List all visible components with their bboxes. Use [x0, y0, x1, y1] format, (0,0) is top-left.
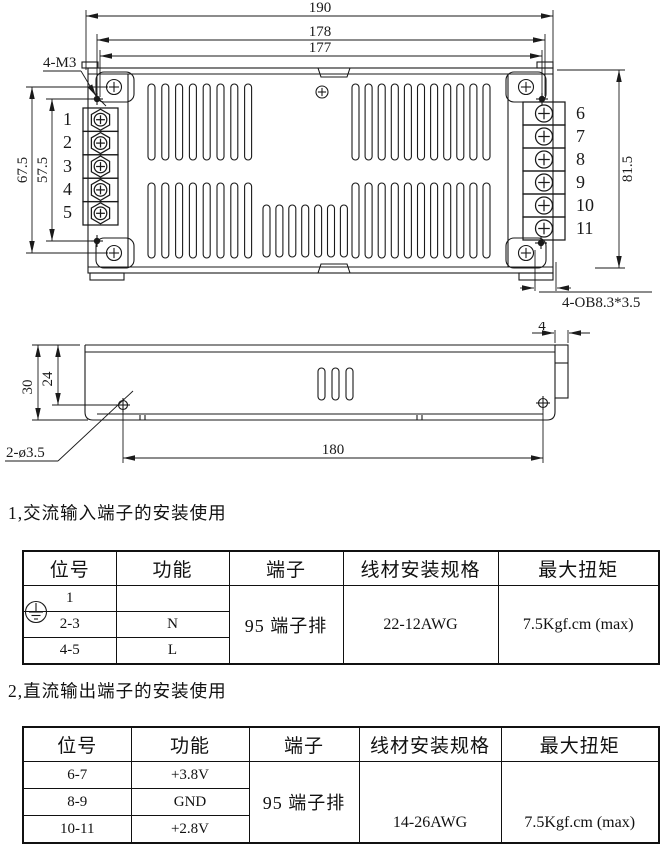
terminal-4-label: 4	[63, 179, 72, 199]
dim-190-label: 190	[309, 0, 332, 16]
chassis-screws	[91, 80, 548, 261]
terminal-5-label: 5	[63, 202, 72, 222]
dc-col-max-torque: 最大扭矩	[501, 727, 659, 762]
dc-col-wire-spec: 线材安装规格	[359, 727, 501, 762]
dc-col-position: 位号	[23, 727, 131, 762]
ac-col-position: 位号	[23, 551, 116, 586]
terminal-3-label: 3	[63, 156, 72, 176]
side-view-drawing: 30 24 4 2-ø3.5 180	[0, 322, 670, 474]
dc-pos-3: 10-11	[23, 816, 131, 844]
dim-81-5-label: 81.5	[620, 156, 636, 182]
ac-table-header-row: 位号 功能 端子 线材安装规格 最大扭矩	[23, 551, 659, 586]
ac-func-2: N	[116, 612, 229, 638]
terminal-6-label: 6	[576, 103, 585, 123]
side-vent-slots	[318, 368, 353, 400]
dim-4-label: 4	[538, 322, 546, 334]
dc-output-table: 位号 功能 端子 线材安装规格 最大扭矩 6-7 +3.8V 95 端子排 14…	[22, 726, 660, 844]
dc-table-header-row: 位号 功能 端子 线材安装规格 最大扭矩	[23, 727, 659, 762]
table-row: 6-7 +3.8V 95 端子排 14-26AWG 7.5Kgf.cm (max…	[23, 762, 659, 789]
dim-178-label: 178	[309, 24, 332, 40]
dc-max-torque: 7.5Kgf.cm (max)	[501, 762, 659, 844]
terminal-11-label: 11	[576, 218, 593, 238]
top-view-dimensions	[26, 10, 652, 292]
ac-func-3: L	[116, 638, 229, 665]
ac-func-1	[116, 586, 229, 612]
terminal-7-label: 7	[576, 126, 585, 146]
dc-func-2: GND	[131, 789, 249, 816]
ac-terminal-type: 95 端子排	[229, 586, 343, 665]
terminal-10-label: 10	[576, 195, 594, 215]
vent-slots	[148, 84, 490, 258]
dc-func-3: +2.8V	[131, 816, 249, 844]
dim-30-label: 30	[20, 380, 36, 395]
dc-wire-spec: 14-26AWG	[359, 762, 501, 844]
terminal-1-label: 1	[63, 109, 72, 129]
dc-terminal-type: 95 端子排	[249, 762, 359, 844]
ac-col-terminal: 端子	[229, 551, 343, 586]
ac-col-function: 功能	[116, 551, 229, 586]
dc-col-terminal: 端子	[249, 727, 359, 762]
ac-wire-spec: 22-12AWG	[343, 586, 498, 665]
dim-177-label: 177	[309, 40, 332, 56]
protective-earth-icon	[23, 599, 49, 625]
ac-pos-3: 4-5	[23, 638, 116, 665]
top-view-drawing: 190 178 177 4-M3 67.5 57.5 81.5 4-OB8.3*…	[0, 0, 670, 322]
dim-67-5-label: 67.5	[15, 157, 31, 183]
table-row: 1 95 端子排 22-12AWG 7.5Kgf.cm (max)	[23, 586, 659, 612]
dc-func-1: +3.8V	[131, 762, 249, 789]
ac-col-wire-spec: 线材安装规格	[343, 551, 498, 586]
chassis-outline	[82, 62, 553, 280]
datasheet-page: 190 178 177 4-M3 67.5 57.5 81.5 4-OB8.3*…	[0, 0, 670, 848]
dc-pos-2: 8-9	[23, 789, 131, 816]
dc-pos-1: 6-7	[23, 762, 131, 789]
right-terminal-block	[523, 102, 565, 240]
side-outline	[85, 345, 568, 420]
ac-col-max-torque: 最大扭矩	[498, 551, 659, 586]
dc-col-function: 功能	[131, 727, 249, 762]
terminal-2-label: 2	[63, 132, 72, 152]
terminal-9-label: 9	[576, 172, 585, 192]
ac-input-table: 位号 功能 端子 线材安装规格 最大扭矩 1	[22, 550, 660, 665]
terminal-8-label: 8	[576, 149, 585, 169]
oblong-hole-label: 4-OB8.3*3.5	[562, 295, 640, 311]
dim-24-label: 24	[40, 371, 56, 387]
hole-diameter-label: 2-ø3.5	[6, 445, 45, 461]
ac-max-torque: 7.5Kgf.cm (max)	[498, 586, 659, 665]
side-view-dimensions	[5, 330, 590, 463]
dc-output-section-heading: 2,直流输出端子的安装使用	[8, 678, 227, 703]
dim-57-5-label: 57.5	[35, 157, 51, 183]
ac-input-section-heading: 1,交流输入端子的安装使用	[8, 500, 227, 525]
m3-holes-label: 4-M3	[43, 55, 76, 71]
dim-180-label: 180	[322, 442, 345, 458]
